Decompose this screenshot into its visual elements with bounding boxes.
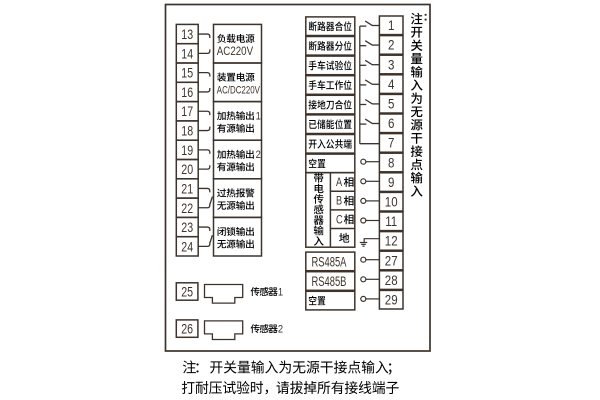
svg-text:13: 13 bbox=[181, 27, 193, 43]
svg-text:4: 4 bbox=[388, 77, 394, 92]
svg-text:18: 18 bbox=[181, 123, 193, 139]
svg-text:AC/DC220V: AC/DC220V bbox=[217, 84, 261, 97]
svg-text:11: 11 bbox=[385, 214, 397, 229]
svg-text:26: 26 bbox=[181, 321, 193, 337]
svg-text:5: 5 bbox=[388, 97, 394, 112]
svg-text:8: 8 bbox=[388, 156, 394, 171]
svg-text:29: 29 bbox=[385, 293, 398, 308]
svg-text:3: 3 bbox=[388, 58, 394, 73]
svg-text:12: 12 bbox=[385, 234, 398, 249]
svg-text:RS485B: RS485B bbox=[312, 274, 347, 289]
svg-text:24: 24 bbox=[181, 239, 193, 255]
svg-text:21: 21 bbox=[181, 181, 193, 197]
svg-text:9: 9 bbox=[388, 175, 394, 190]
svg-text:6: 6 bbox=[388, 116, 394, 131]
svg-text:1: 1 bbox=[256, 111, 261, 123]
svg-text:2: 2 bbox=[256, 150, 261, 162]
svg-text:14: 14 bbox=[181, 46, 193, 62]
svg-text:20: 20 bbox=[181, 162, 193, 178]
svg-text:10: 10 bbox=[385, 195, 398, 210]
svg-text:19: 19 bbox=[181, 143, 193, 159]
svg-text:C: C bbox=[336, 215, 343, 227]
svg-text:1: 1 bbox=[388, 18, 394, 33]
svg-text:A: A bbox=[336, 177, 342, 189]
svg-text:7: 7 bbox=[388, 136, 394, 151]
svg-text:28: 28 bbox=[385, 273, 398, 288]
svg-text:17: 17 bbox=[181, 104, 193, 120]
svg-text:AC220V: AC220V bbox=[217, 45, 254, 58]
svg-text:RS485A: RS485A bbox=[312, 255, 347, 270]
svg-text:25: 25 bbox=[181, 284, 193, 300]
svg-text:16: 16 bbox=[181, 85, 193, 101]
svg-text:22: 22 bbox=[181, 200, 193, 216]
svg-text:1: 1 bbox=[278, 287, 283, 299]
svg-text:2: 2 bbox=[278, 324, 283, 336]
svg-text:23: 23 bbox=[181, 220, 193, 236]
svg-text:15: 15 bbox=[181, 65, 193, 81]
svg-text:2: 2 bbox=[388, 38, 394, 53]
svg-text:B: B bbox=[336, 196, 342, 208]
svg-text:27: 27 bbox=[385, 254, 398, 269]
